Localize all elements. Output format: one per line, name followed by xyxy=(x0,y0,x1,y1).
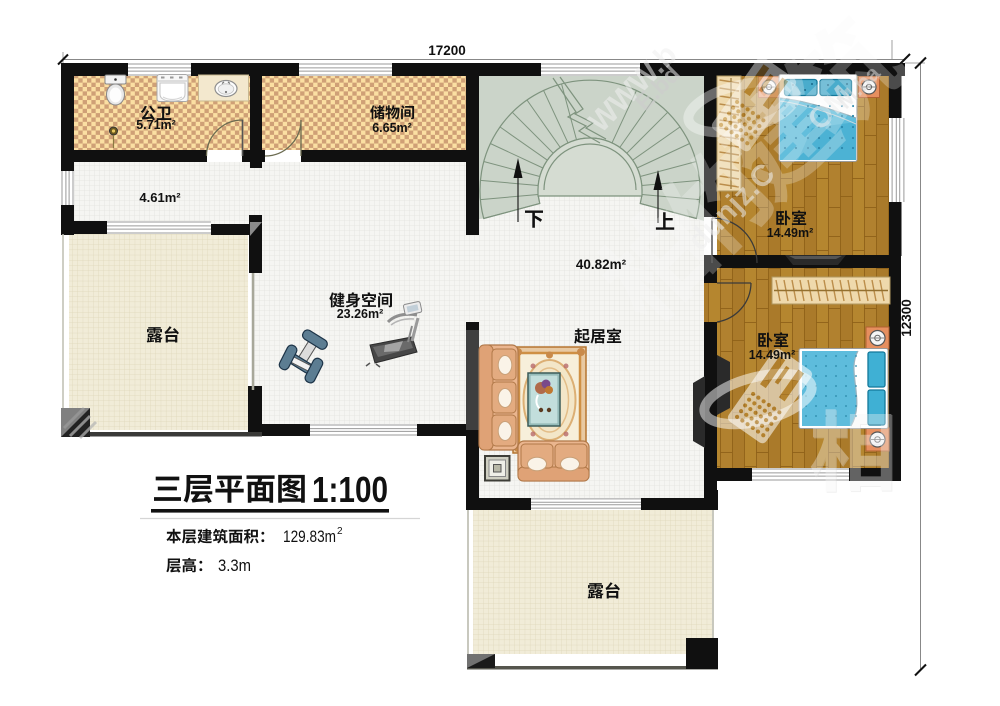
svg-text:40.82m²: 40.82m² xyxy=(576,257,627,272)
svg-text:3.3m: 3.3m xyxy=(218,556,251,575)
svg-text:14.49m²: 14.49m² xyxy=(767,226,814,240)
svg-text:5.71m²: 5.71m² xyxy=(136,118,176,132)
svg-text:129.83m: 129.83m xyxy=(283,527,336,546)
svg-text:12300: 12300 xyxy=(899,299,914,337)
svg-text:1:100: 1:100 xyxy=(312,469,388,510)
svg-text:17200: 17200 xyxy=(428,43,466,58)
svg-text:6.65m²: 6.65m² xyxy=(372,121,412,135)
svg-text:14.49m²: 14.49m² xyxy=(749,348,796,362)
svg-text:2: 2 xyxy=(337,526,343,537)
svg-text:4.61m²: 4.61m² xyxy=(139,190,181,205)
svg-text:23.26m²: 23.26m² xyxy=(337,307,384,321)
